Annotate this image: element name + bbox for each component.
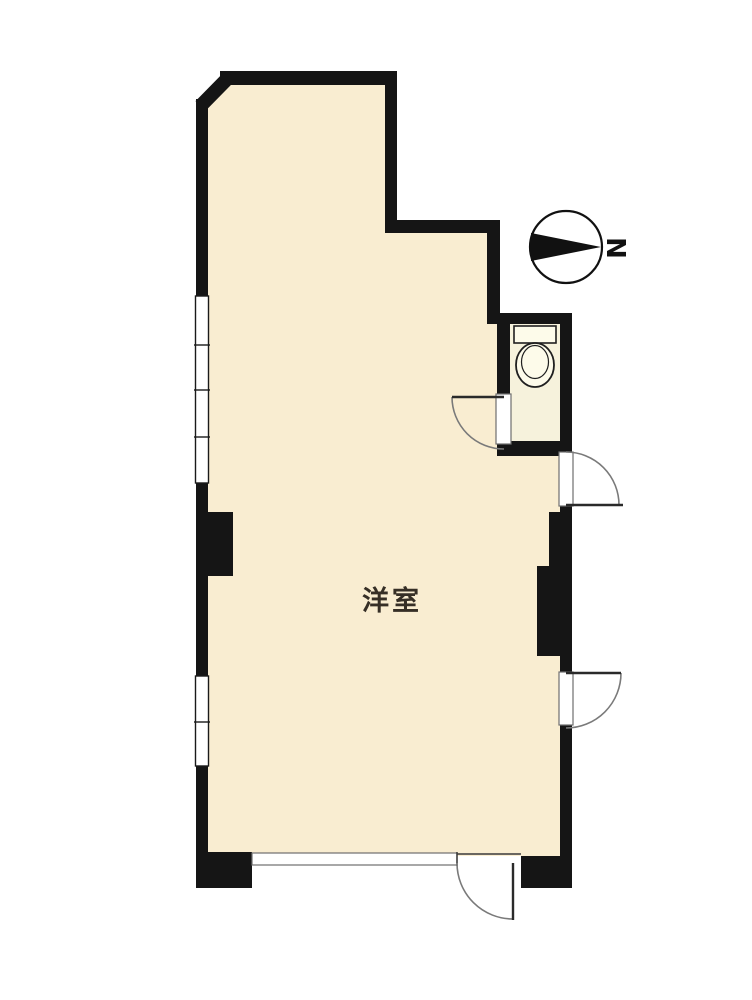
top-wall xyxy=(220,71,397,85)
bottom-window-track xyxy=(252,853,457,865)
room-label: 洋室 xyxy=(362,585,422,617)
right-lower-door-arc xyxy=(566,673,621,728)
bottom-right-corner-block xyxy=(521,856,572,888)
right-door-opening-upper xyxy=(559,452,573,506)
bottom-left-corner-block xyxy=(196,852,252,888)
floor-plan-canvas: N 洋室 xyxy=(0,0,752,1000)
toilet-room xyxy=(510,324,560,441)
toilet-tank-icon xyxy=(514,326,556,343)
toilet-right-wall xyxy=(560,313,572,456)
step-wall xyxy=(385,220,500,233)
floor-plan-drawing: N 洋室 xyxy=(0,0,752,1000)
window-lower-left xyxy=(196,676,209,766)
left-wall-lower xyxy=(196,576,208,678)
toilet-door-opening xyxy=(496,394,511,444)
compass-icon: N xyxy=(530,211,630,283)
left-wall-bottom xyxy=(196,764,208,856)
left-wall-upper xyxy=(196,99,208,298)
toilet-top-wall xyxy=(487,313,572,324)
right-wall-seg3 xyxy=(560,723,572,858)
right-upper-door-arc xyxy=(566,452,619,505)
left-wall-mid xyxy=(196,481,208,512)
upper-right-wall xyxy=(385,71,397,222)
bottom-door-arc xyxy=(457,863,513,919)
right-wall-seg2 xyxy=(560,654,572,674)
right-wall-pillar2 xyxy=(537,566,572,656)
left-wall-pillar xyxy=(196,512,233,576)
toilet-left-wall xyxy=(497,324,510,396)
right-door-opening-lower xyxy=(559,672,573,725)
compass-north-label: N xyxy=(600,237,630,259)
right-wall-pillar1 xyxy=(549,512,572,566)
mid-right-wall xyxy=(487,233,500,313)
main-room-area xyxy=(197,73,571,856)
bottom-edge xyxy=(252,852,521,920)
